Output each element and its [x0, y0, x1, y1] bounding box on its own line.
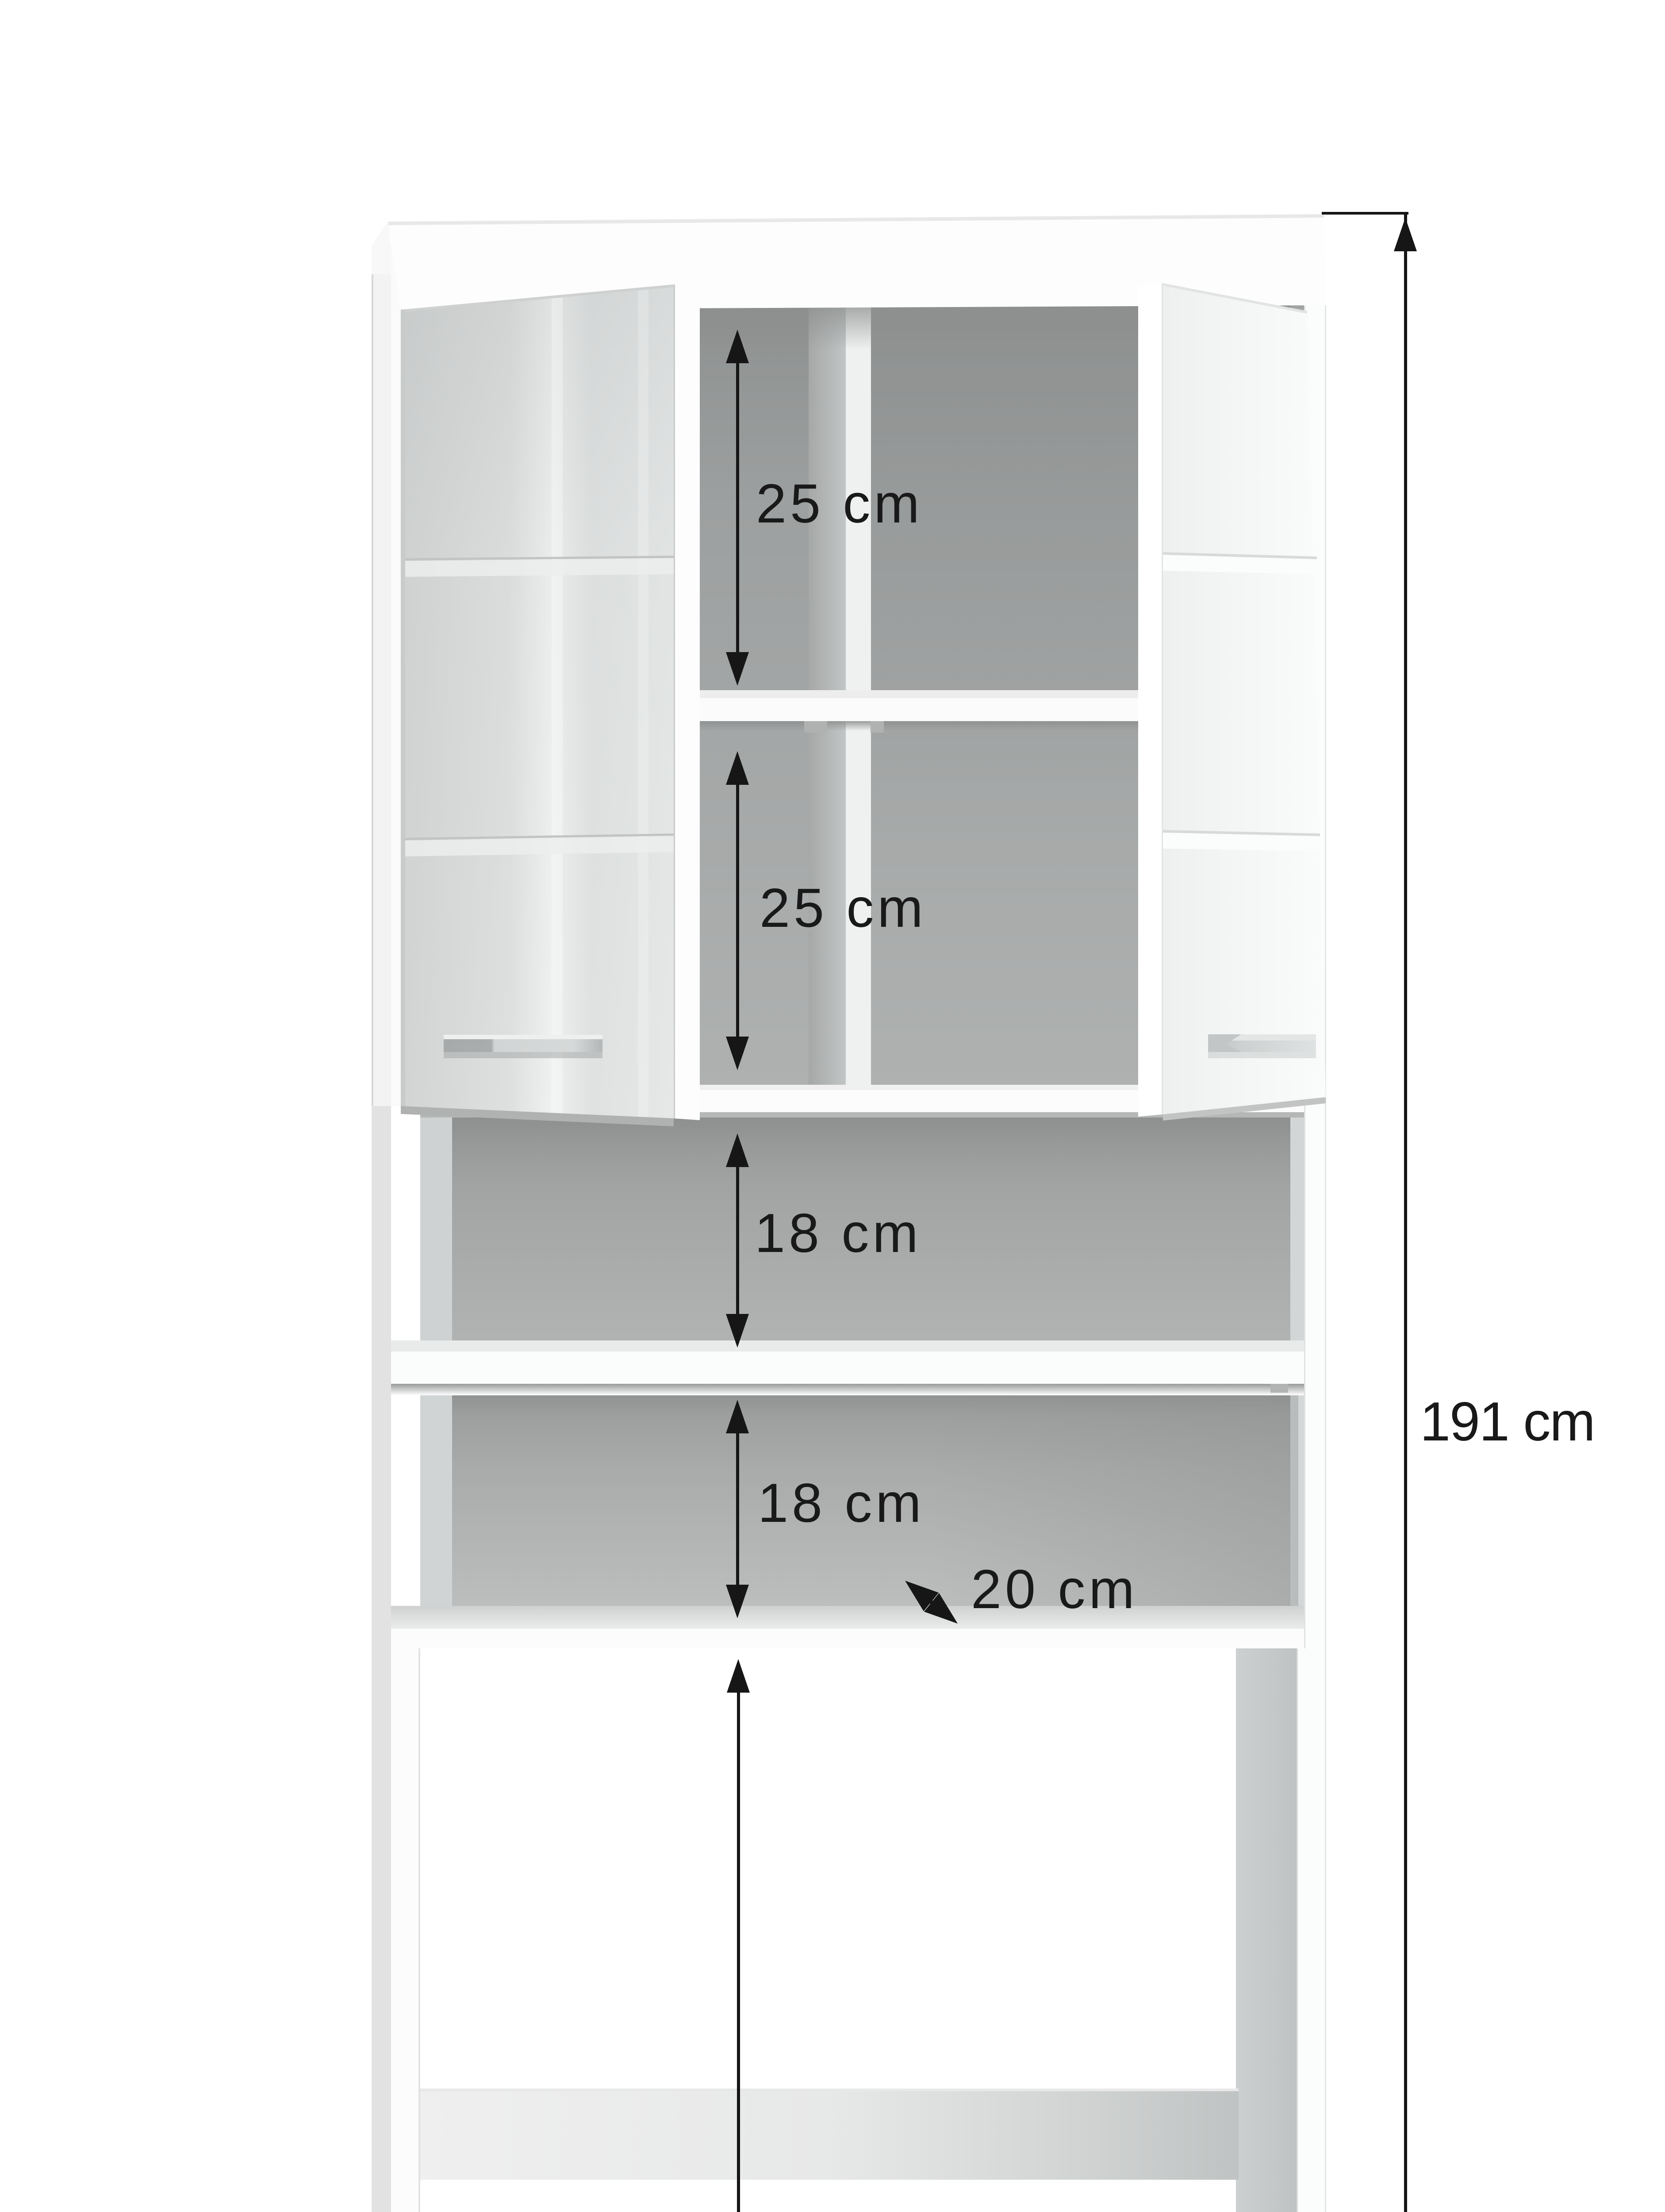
svg-text:25 cm: 25 cm [760, 878, 927, 939]
svg-text:18 cm: 18 cm [758, 1473, 925, 1534]
svg-text:18 cm: 18 cm [755, 1203, 922, 1264]
svg-text:20 cm: 20 cm [971, 1559, 1138, 1620]
svg-text:191 cm: 191 cm [1420, 1391, 1595, 1452]
svg-text:25 cm: 25 cm [756, 473, 923, 534]
